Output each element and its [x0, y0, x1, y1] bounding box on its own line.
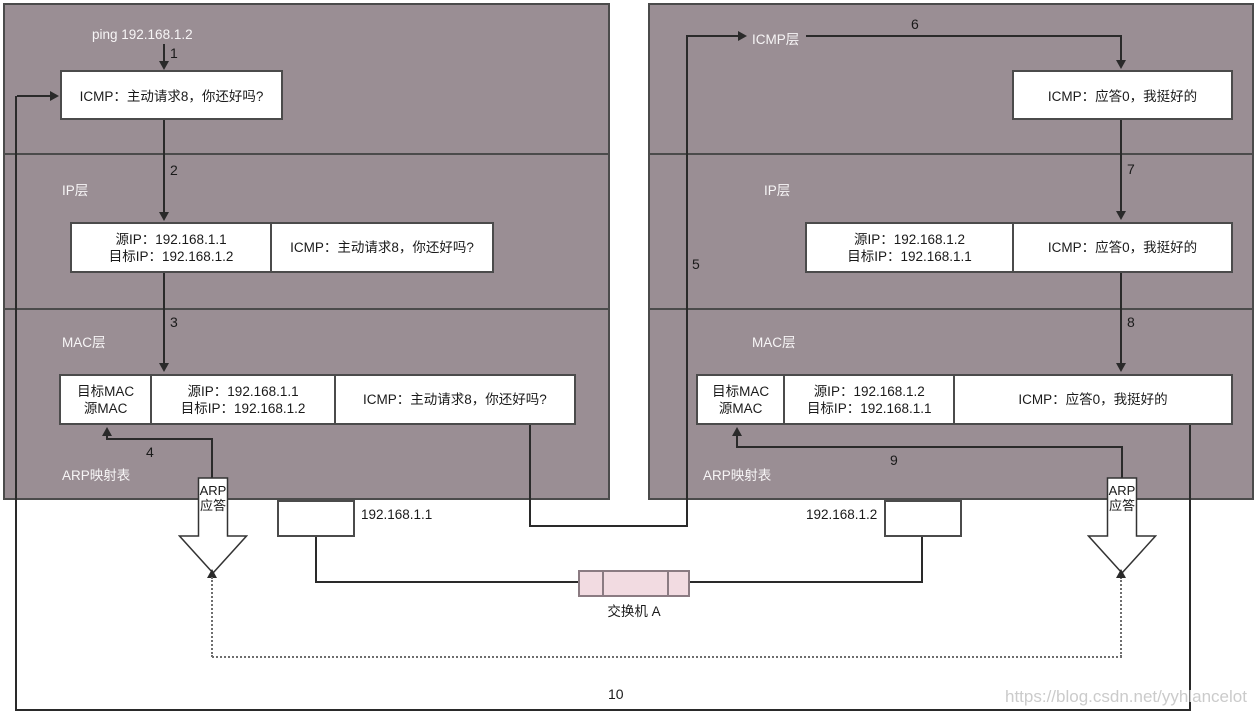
- arrowhead-step2-icon: [159, 212, 169, 221]
- right-ip-frame: 源IP：192.168.1.2 目标IP：192.168.1.1 ICMP：应答…: [805, 222, 1233, 273]
- flow-line-step8: [1120, 273, 1122, 365]
- switch-label: 交换机 A: [592, 600, 676, 620]
- flow-line-step10-into-icmp: [17, 95, 53, 97]
- step-7-label: 7: [1127, 161, 1135, 177]
- flow-line-step5-into-icmp: [686, 35, 740, 37]
- icmp-ping-diagram: ping 192.168.1.2 1 ICMP：主动请求8，你还好吗? 2 IP…: [0, 0, 1257, 719]
- left-nic-link-v: [315, 537, 317, 583]
- right-arp-dotted-arrowhead-icon: [1116, 569, 1126, 578]
- flow-line-step3: [163, 273, 165, 365]
- left-mac-ip-cell: 源IP：192.168.1.1 目标IP：192.168.1.2: [150, 376, 334, 423]
- left-panel-divider-icmp-ip: [3, 153, 610, 155]
- switch-left-cap: [602, 572, 604, 595]
- arrowhead-step3-icon: [159, 363, 169, 372]
- left-arp-table-label: ARP映射表: [62, 464, 130, 484]
- step-5-label: 5: [692, 256, 700, 272]
- right-panel-divider-ip-mac: [648, 308, 1254, 310]
- left-ip-header-cell: 源IP：192.168.1.1 目标IP：192.168.1.2: [72, 224, 270, 271]
- right-arp-table-label: ARP映射表: [703, 464, 771, 484]
- right-ip-layer-label: IP层: [764, 179, 790, 199]
- flow-line-step4-v: [211, 438, 213, 478]
- left-mac-payload-cell: ICMP：主动请求8，你还好吗?: [334, 376, 574, 423]
- step-6-label: 6: [911, 16, 919, 32]
- left-ip-frame: 源IP：192.168.1.1 目标IP：192.168.1.2 ICMP：主动…: [70, 222, 494, 273]
- flow-line-step7: [1120, 120, 1122, 213]
- right-ip-header-cell: 源IP：192.168.1.2 目标IP：192.168.1.1: [807, 224, 1012, 271]
- arrowhead-step7-icon: [1116, 211, 1126, 220]
- step-2-label: 2: [170, 162, 178, 178]
- flow-line-step2: [163, 120, 165, 214]
- flow-line-step10-right: [1189, 425, 1191, 711]
- right-mac-ip-cell: 源IP：192.168.1.2 目标IP：192.168.1.1: [783, 376, 953, 423]
- arrowhead-step5-icon: [738, 31, 747, 41]
- flow-line-step9-v: [1121, 446, 1123, 478]
- watermark: https://blog.csdn.net/yyhlancelot: [1005, 687, 1247, 707]
- left-nic-ip-label: 192.168.1.1: [361, 507, 432, 522]
- ping-command-label: ping 192.168.1.2: [92, 27, 193, 42]
- right-mac-payload-cell: ICMP：应答0，我挺好的: [953, 376, 1231, 423]
- flow-line-step10-left: [15, 96, 17, 711]
- left-arp-reply-label: ARP 应答: [183, 483, 243, 513]
- left-icmp-request-box: ICMP：主动请求8，你还好吗?: [60, 70, 283, 120]
- right-mac-frame: 目标MAC 源MAC 源IP：192.168.1.2 目标IP：192.168.…: [696, 374, 1233, 425]
- left-ip-payload-cell: ICMP：主动请求8，你还好吗?: [270, 224, 492, 271]
- arrowhead-step8-icon: [1116, 363, 1126, 372]
- switch-right-cap: [667, 572, 669, 595]
- flow-line-step5-across: [529, 525, 688, 527]
- flow-line-step5-down: [529, 425, 531, 527]
- arrowhead-step6-icon: [1116, 60, 1126, 69]
- step-3-label: 3: [170, 314, 178, 330]
- arp-dotted-left-v: [211, 577, 213, 657]
- left-mac-frame: 目标MAC 源MAC 源IP：192.168.1.1 目标IP：192.168.…: [59, 374, 576, 425]
- left-panel-divider-ip-mac: [3, 308, 610, 310]
- arp-dotted-h: [212, 656, 1122, 658]
- left-nic-link-h: [315, 581, 579, 583]
- flow-line-step6-v: [1120, 36, 1122, 62]
- step-8-label: 8: [1127, 314, 1135, 330]
- flow-line-step9-h: [736, 446, 1123, 448]
- left-mac-header-cell: 目标MAC 源MAC: [61, 376, 150, 423]
- arp-dotted-right-v: [1120, 577, 1122, 657]
- arrowhead-step1-icon: [159, 61, 169, 70]
- step-1-label: 1: [170, 45, 178, 61]
- right-arp-reply-label: ARP 应答: [1092, 483, 1152, 513]
- flow-line-step6-h: [806, 35, 1122, 37]
- right-icmp-reply-box: ICMP：应答0，我挺好的: [1012, 70, 1233, 120]
- left-mac-layer-label: MAC层: [62, 331, 106, 351]
- flow-line-step4-h: [106, 438, 213, 440]
- step-10-label: 10: [608, 686, 624, 702]
- left-nic-box: [277, 500, 355, 537]
- right-nic-box: [884, 500, 962, 537]
- arrowhead-step10-icon: [50, 91, 59, 101]
- right-nic-ip-label: 192.168.1.2: [806, 507, 877, 522]
- switch-a: [578, 570, 690, 597]
- right-nic-link-h: [690, 581, 923, 583]
- right-mac-header-cell: 目标MAC 源MAC: [698, 376, 783, 423]
- step-9-label: 9: [890, 452, 898, 468]
- right-icmp-layer-label: ICMP层: [752, 28, 799, 48]
- flow-line-step10-bottom: [15, 709, 1191, 711]
- right-ip-payload-cell: ICMP：应答0，我挺好的: [1012, 224, 1231, 271]
- right-panel-divider-icmp-ip: [648, 153, 1254, 155]
- flow-line-step5-up: [686, 36, 688, 527]
- left-ip-layer-label: IP层: [62, 179, 88, 199]
- right-nic-link-v: [921, 537, 923, 583]
- right-mac-layer-label: MAC层: [752, 331, 796, 351]
- step-4-label: 4: [146, 444, 154, 460]
